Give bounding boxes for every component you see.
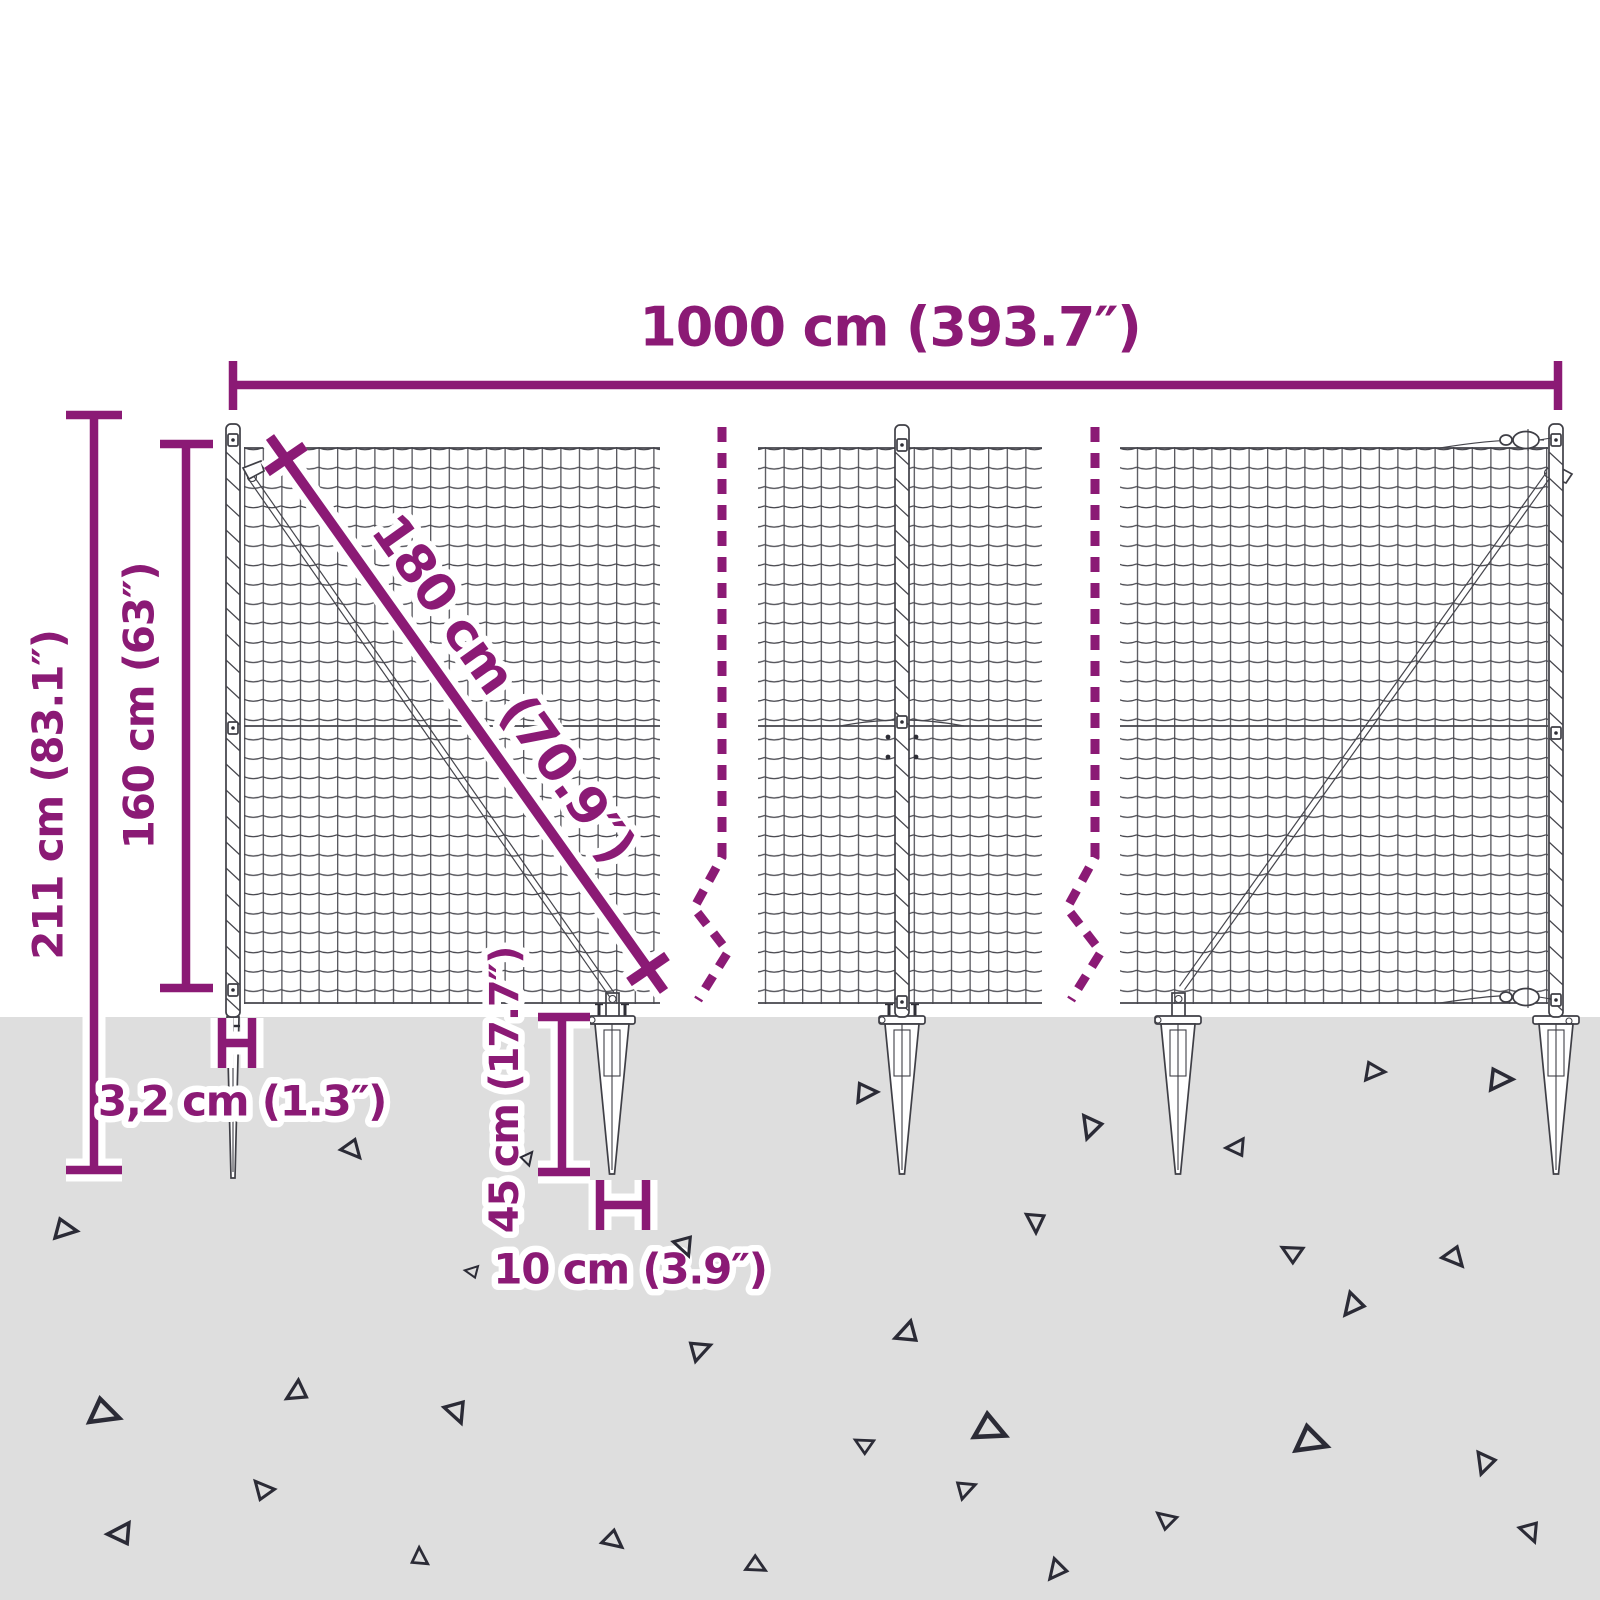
post-right xyxy=(1549,424,1563,1017)
dim-total-height-label: 211 cm (83.1″) xyxy=(24,630,73,960)
diagram-canvas: 1000 cm (393.7″) 211 cm (83.1″) 160 cm (… xyxy=(0,0,1600,1600)
dim-anchor-width-label: 10 cm (3.9″) xyxy=(493,1245,767,1294)
post-left xyxy=(226,424,240,1017)
dim-total-width-label: 1000 cm (393.7″) xyxy=(639,296,1140,359)
dim-fence-height-label: 160 cm (63″) xyxy=(115,563,164,850)
fence-dimension-diagram: 1000 cm (393.7″) 211 cm (83.1″) 160 cm (… xyxy=(0,0,1600,1600)
dim-anchor-depth-label: 45 cm (17.7″) xyxy=(482,947,528,1233)
dim-spike-width-label: 3,2 cm (1.3″) xyxy=(98,1077,386,1126)
